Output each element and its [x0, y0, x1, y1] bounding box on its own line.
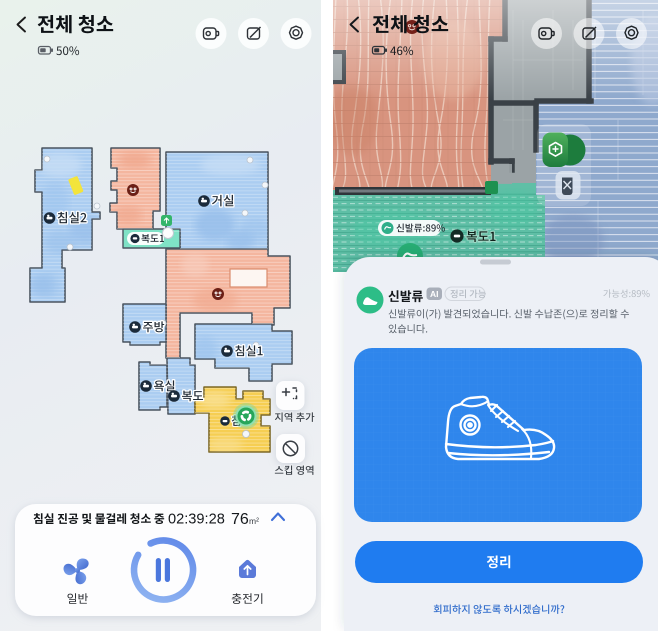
svg-text:m²: m² [249, 516, 259, 526]
svg-text:02:39:28: 02:39:28 [168, 512, 225, 528]
svg-text:76: 76 [231, 511, 249, 528]
svg-text:AI: AI [430, 289, 439, 299]
